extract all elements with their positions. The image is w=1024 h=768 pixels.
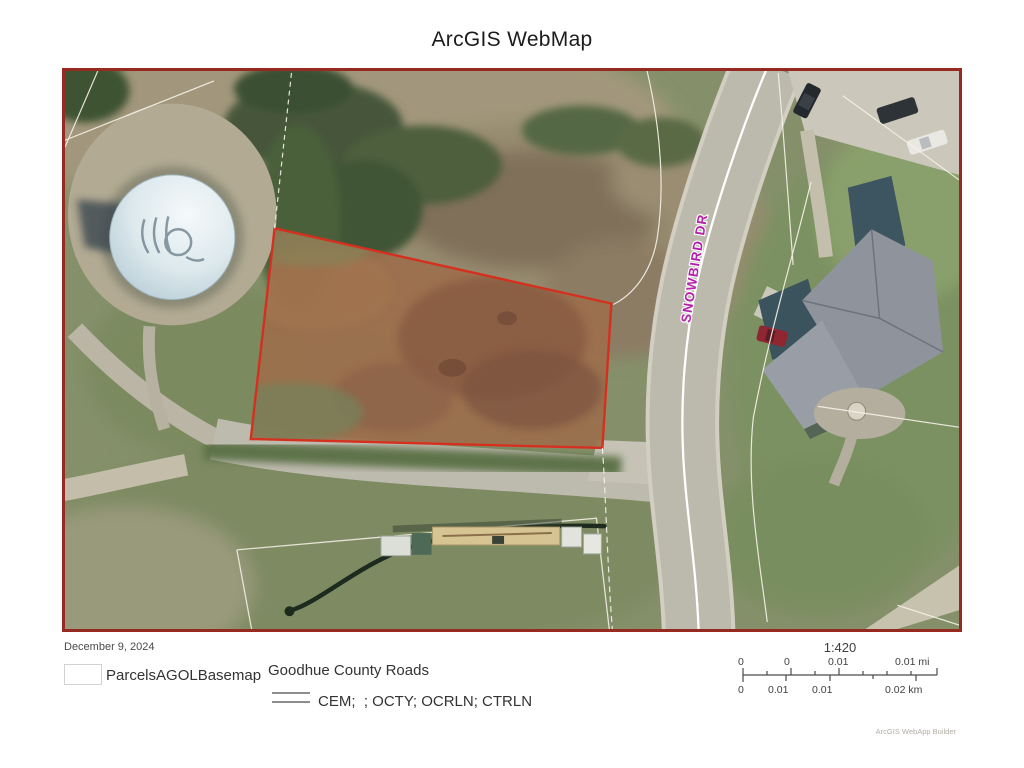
map-date: December 9, 2024 [64,641,155,653]
scale-mi-tick-label: 0.01 [828,656,848,668]
map-viewport[interactable]: SNOWBIRD DR [62,68,962,632]
white-cube-truck [562,527,582,547]
legend-roads-group-label: Goodhue County Roads [268,662,429,679]
legend-roads-layer-label: CEM; ; OCTY; OCRLN; CTRLN [318,693,532,710]
scale-bar [740,668,940,682]
scale-mi-tick-label: 0 [738,656,744,668]
page-title: ArcGIS WebMap [0,28,1024,52]
legend-basemap-label: ParcelsAGOLBasemap [106,667,261,684]
aerial-basemap: SNOWBIRD DR [65,71,959,629]
white-trailer [381,536,411,556]
scale-km-tick-label: 0.01 [812,684,832,696]
scale-mi-tick-label: 0 [784,656,790,668]
road-line-symbol [272,692,310,703]
scale-mi-tick-label: 0.01 mi [895,656,929,668]
white-van [584,534,602,554]
attribution: ArcGIS WebApp Builder [760,727,956,736]
scale-km-tick-label: 0 [738,684,744,696]
parcel-swatch [64,664,102,685]
scale-km-tick-label: 0.02 km [885,684,922,696]
green-truck [412,533,432,555]
scale-km-tick-label: 0.01 [768,684,788,696]
scale-ratio: 1:420 [740,640,940,655]
water-tower-sphere [110,175,235,300]
